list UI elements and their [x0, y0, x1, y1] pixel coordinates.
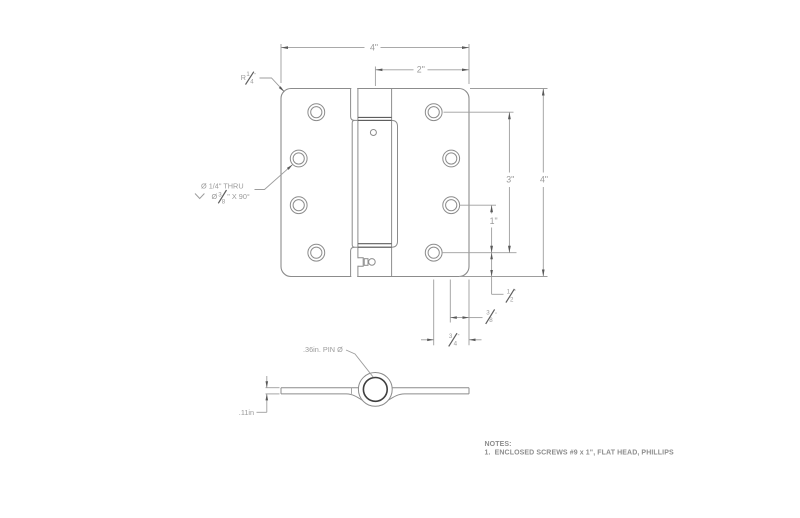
svg-text:2: 2	[510, 296, 514, 303]
svg-text:4: 4	[250, 80, 254, 86]
svg-text:" X 90°: " X 90°	[227, 192, 250, 201]
svg-text:": "	[514, 289, 516, 295]
svg-text:NOTES:: NOTES:	[485, 441, 512, 448]
svg-text:R: R	[241, 73, 246, 82]
svg-text:.11in: .11in	[239, 408, 254, 417]
svg-text:1: 1	[507, 289, 511, 296]
svg-text:3": 3"	[506, 175, 514, 185]
svg-text:2": 2"	[417, 65, 425, 75]
svg-text:": "	[495, 312, 497, 318]
svg-text:4: 4	[454, 341, 458, 348]
svg-text:4": 4"	[370, 42, 378, 52]
svg-text:Ø: Ø	[212, 192, 218, 201]
svg-text:Ø 1/4" THRU: Ø 1/4" THRU	[201, 181, 244, 190]
svg-text:4": 4"	[540, 175, 548, 185]
svg-text:8: 8	[489, 317, 493, 324]
svg-text:.36in. PIN Ø: .36in. PIN Ø	[303, 345, 343, 354]
svg-text:3: 3	[449, 333, 453, 340]
svg-text:1. ENCLOSED SCREWS #9 x 1", F: 1. ENCLOSED SCREWS #9 x 1", FLAT HEAD, P…	[485, 450, 674, 457]
svg-text:": "	[458, 334, 460, 340]
svg-text:1": 1"	[490, 216, 498, 226]
svg-text:": "	[254, 73, 256, 79]
svg-text:3: 3	[486, 309, 490, 316]
svg-text:8: 8	[222, 199, 226, 206]
